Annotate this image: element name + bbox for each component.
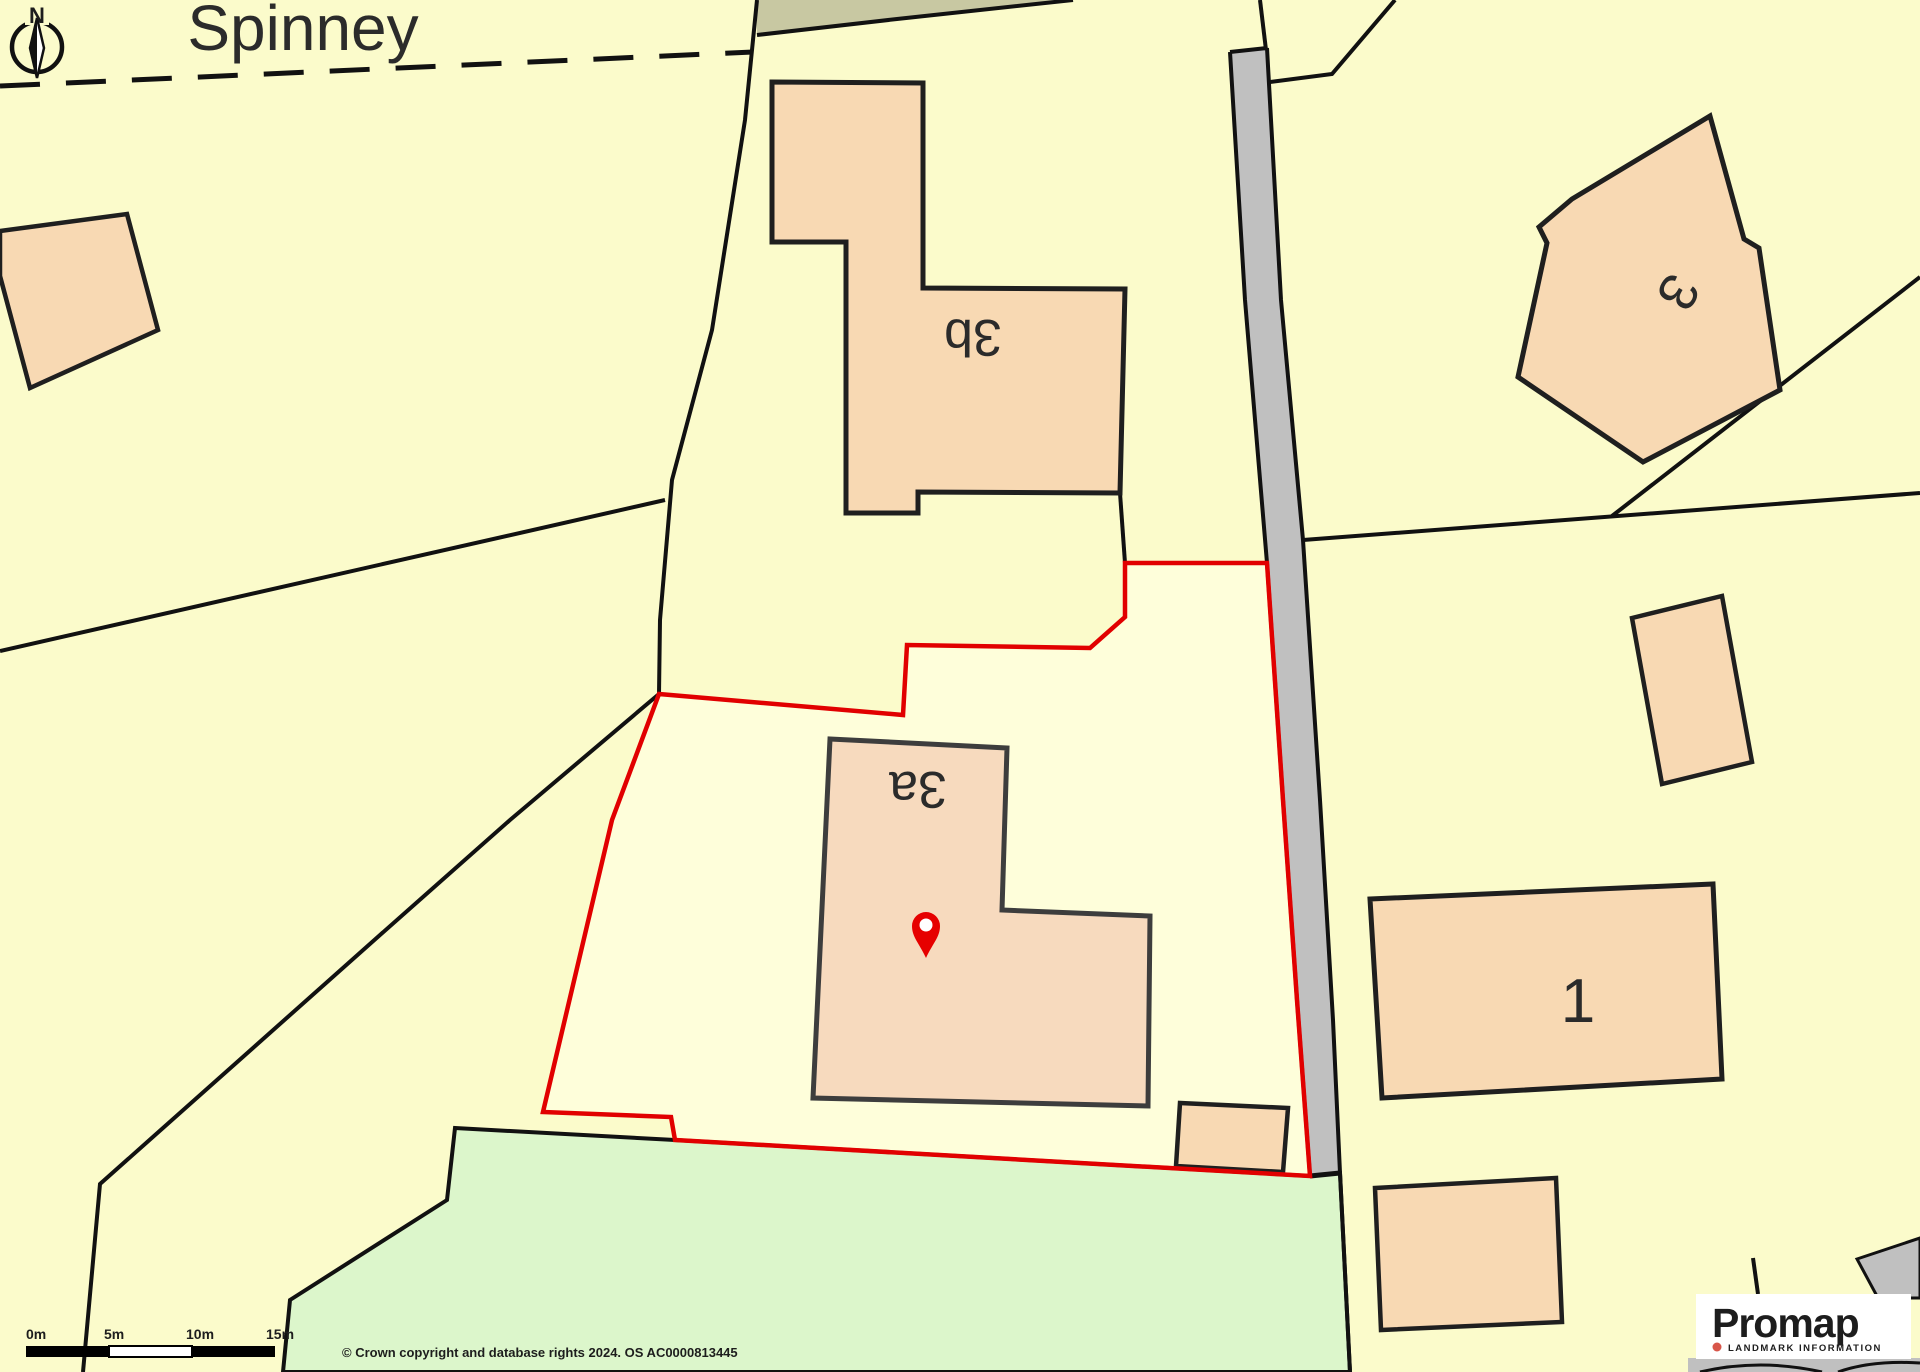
map-label-spinney: Spinney [187, 0, 418, 64]
scale-segment-1 [26, 1346, 109, 1357]
building-bottom-small [1176, 1103, 1288, 1172]
map-viewport[interactable]: Spinney 3b 3a 3 1 N 0m 5m 10m 15m © Crow… [0, 0, 1920, 1372]
promap-logo: Promap LANDMARK INFORMATION [1696, 1294, 1911, 1359]
scale-label-15m: 15m [266, 1326, 294, 1342]
scale-label-0m: 0m [26, 1326, 46, 1342]
road-end-cap [1310, 1173, 1340, 1176]
map-canvas[interactable]: Spinney 3b 3a 3 1 N 0m 5m 10m 15m © Crow… [0, 0, 1920, 1372]
map-label-3b: 3b [944, 308, 1002, 366]
map-label-3a: 3a [889, 760, 947, 818]
landmark-dot-icon [1713, 1343, 1722, 1352]
building-bottom-right [1375, 1178, 1562, 1330]
building-house-1 [1370, 884, 1722, 1098]
compass-north-label: N [29, 3, 45, 28]
scale-segment-3 [192, 1346, 275, 1357]
scale-label-5m: 5m [104, 1326, 124, 1342]
map-label-1: 1 [1561, 967, 1595, 1036]
scale-label-10m: 10m [186, 1326, 214, 1342]
scale-segment-2 [109, 1346, 192, 1357]
copyright-text: © Crown copyright and database rights 20… [342, 1345, 738, 1360]
landmark-tagline: LANDMARK INFORMATION [1728, 1343, 1882, 1354]
promap-wordmark: Promap [1712, 1300, 1859, 1346]
